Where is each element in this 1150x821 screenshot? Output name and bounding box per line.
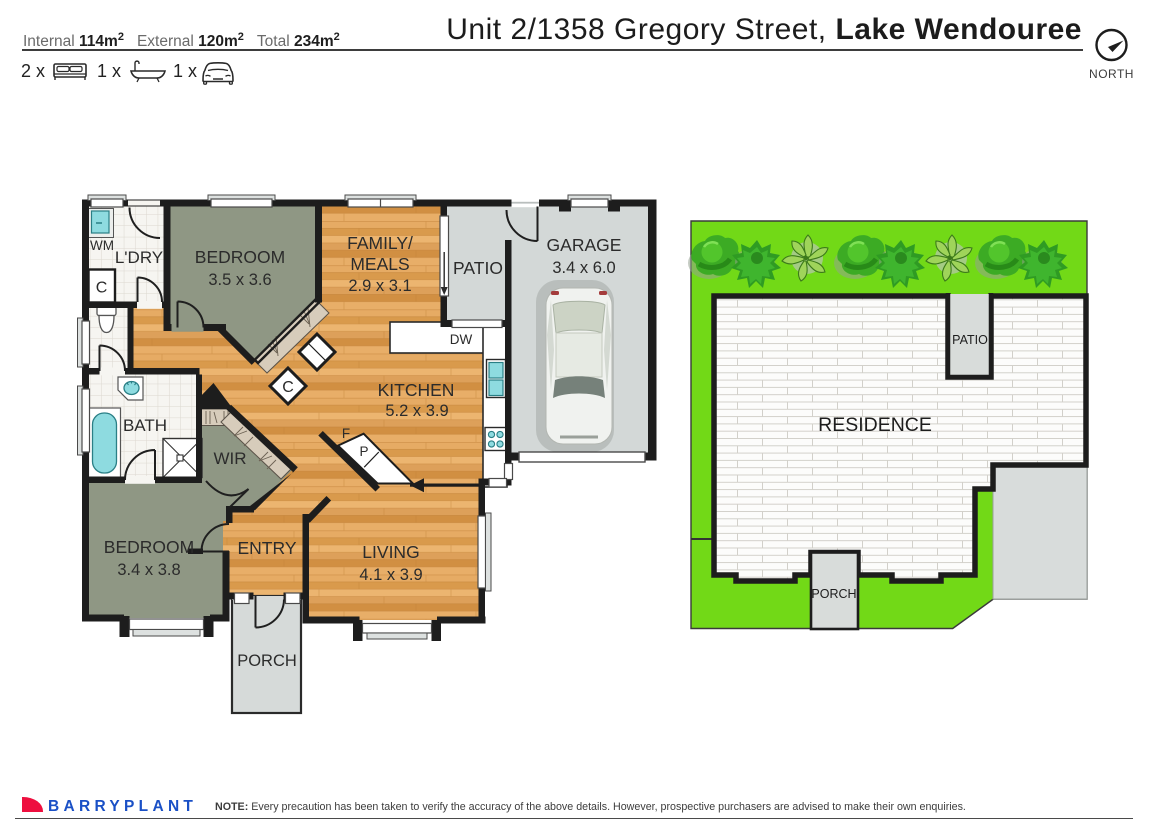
svg-text:PATIO: PATIO bbox=[952, 333, 988, 347]
svg-text:BEDROOM: BEDROOM bbox=[104, 537, 194, 557]
svg-text:3.4 x 6.0: 3.4 x 6.0 bbox=[552, 259, 615, 277]
svg-text:WIR: WIR bbox=[213, 449, 246, 468]
svg-text:P: P bbox=[359, 444, 368, 459]
svg-text:5.2 x 3.9: 5.2 x 3.9 bbox=[385, 402, 448, 420]
svg-text:2.9 x 3.1: 2.9 x 3.1 bbox=[348, 277, 411, 295]
svg-text:C: C bbox=[282, 379, 294, 396]
svg-text:DW: DW bbox=[450, 332, 473, 347]
svg-text:L'DRY: L'DRY bbox=[115, 248, 163, 267]
svg-text:C: C bbox=[96, 280, 108, 297]
svg-text:LIVING: LIVING bbox=[362, 542, 419, 562]
svg-text:F: F bbox=[342, 426, 350, 441]
svg-text:KITCHEN: KITCHEN bbox=[378, 380, 455, 400]
svg-text:MEALS: MEALS bbox=[350, 254, 409, 274]
svg-text:BEDROOM: BEDROOM bbox=[195, 247, 285, 267]
svg-text:GARAGE: GARAGE bbox=[547, 235, 622, 255]
svg-text:ENTRY: ENTRY bbox=[238, 538, 297, 558]
svg-text:PATIO: PATIO bbox=[453, 258, 503, 278]
svg-text:WM: WM bbox=[90, 238, 114, 253]
svg-text:FAMILY/: FAMILY/ bbox=[347, 233, 413, 253]
svg-text:PORCH: PORCH bbox=[811, 587, 856, 601]
svg-text:BATH: BATH bbox=[123, 416, 167, 435]
svg-text:3.4 x 3.8: 3.4 x 3.8 bbox=[117, 561, 180, 579]
svg-text:PORCH: PORCH bbox=[237, 652, 297, 670]
svg-text:RESIDENCE: RESIDENCE bbox=[818, 414, 932, 436]
svg-text:3.5 x 3.6: 3.5 x 3.6 bbox=[208, 271, 271, 289]
svg-text:4.1 x 3.9: 4.1 x 3.9 bbox=[359, 566, 422, 584]
